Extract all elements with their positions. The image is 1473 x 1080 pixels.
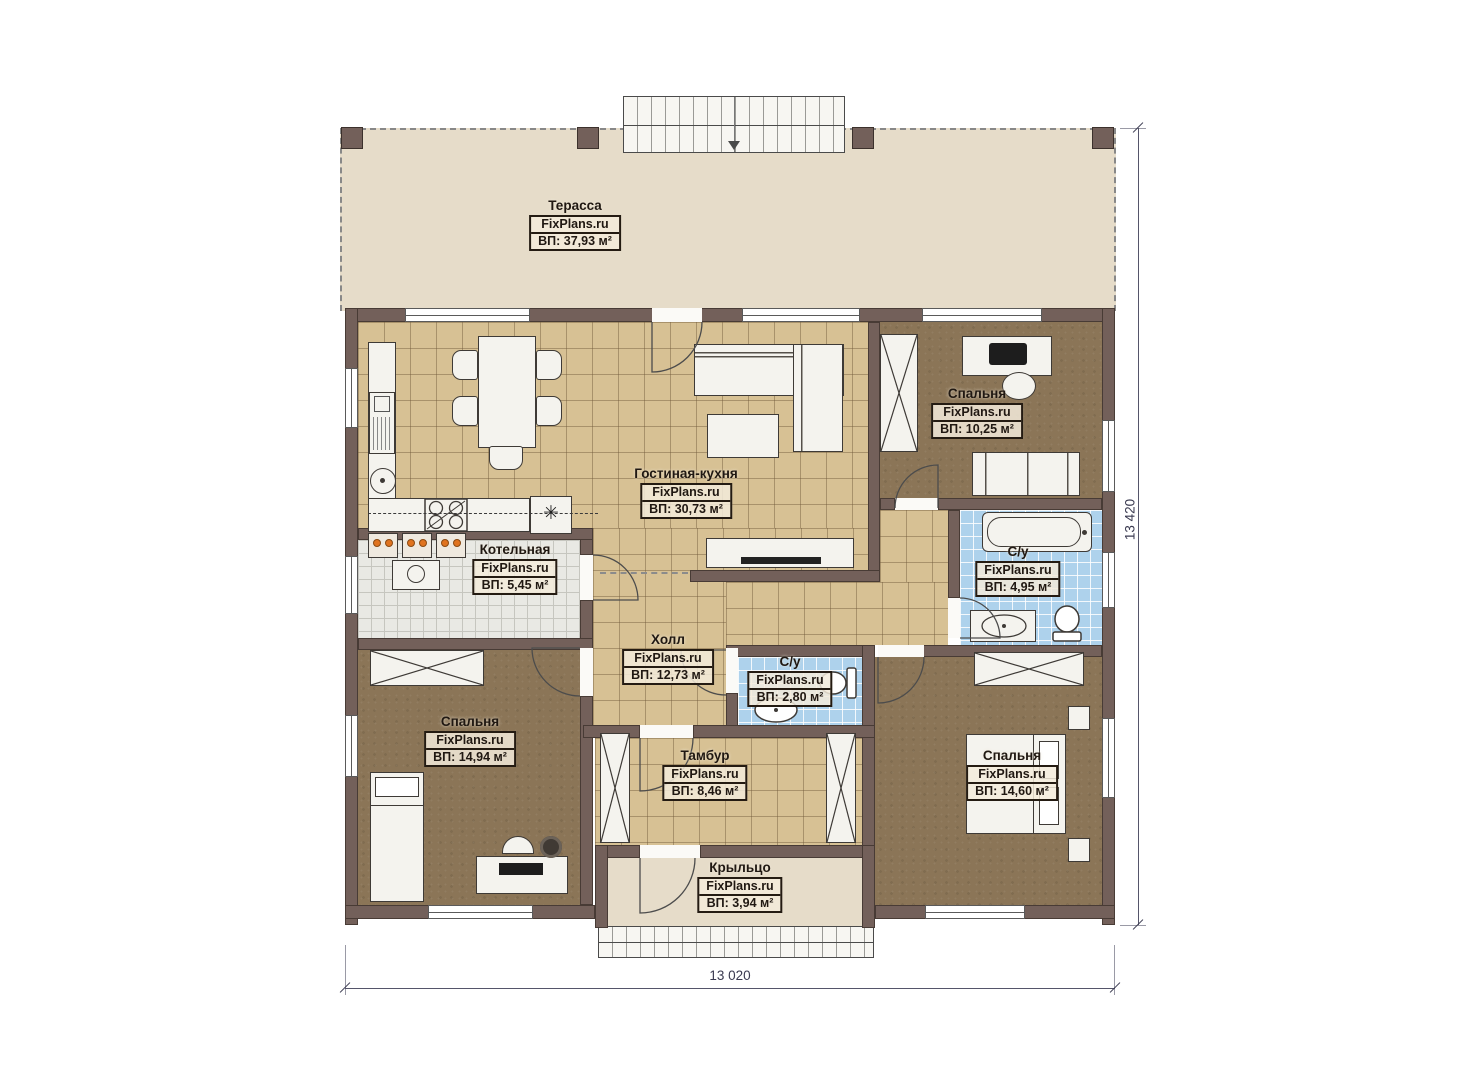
dim-width-label: 13 020	[345, 968, 1115, 983]
room-label-bedroom-br: Спальня FixPlans.ru ВП: 14,60 м²	[966, 748, 1058, 801]
room-label-box: FixPlans.ru ВП: 10,25 м²	[931, 403, 1023, 439]
room-label-bedroom-bl: Спальня FixPlans.ru ВП: 14,94 м²	[424, 714, 516, 767]
brand-text: FixPlans.ru	[749, 673, 830, 690]
room-label-terrace: Терасса FixPlans.ru ВП: 37,93 м²	[529, 198, 621, 251]
room-area: ВП: 10,25 м²	[933, 422, 1021, 437]
room-label-living-kitchen: Гостиная-кухня FixPlans.ru ВП: 30,73 м²	[634, 466, 737, 519]
dim-height-label: 13 420	[1123, 490, 1138, 550]
room-name: Тамбур	[662, 748, 747, 763]
room-label-box: FixPlans.ru ВП: 3,94 м²	[697, 877, 782, 913]
room-label-wc: С/у FixPlans.ru ВП: 2,80 м²	[747, 654, 832, 707]
brand-text: FixPlans.ru	[664, 767, 745, 784]
room-label-box: FixPlans.ru ВП: 30,73 м²	[640, 483, 732, 519]
room-label-vestibule: Тамбур FixPlans.ru ВП: 8,46 м²	[662, 748, 747, 801]
room-label-box: FixPlans.ru ВП: 12,73 м²	[622, 649, 714, 685]
room-label-boiler: Котельная FixPlans.ru ВП: 5,45 м²	[472, 542, 557, 595]
room-area: ВП: 14,60 м²	[968, 784, 1056, 799]
door-arc-porch	[640, 858, 695, 913]
room-label-box: FixPlans.ru ВП: 5,45 м²	[472, 559, 557, 595]
brand-text: FixPlans.ru	[426, 733, 514, 750]
brand-text: FixPlans.ru	[699, 879, 780, 896]
dim-line-right	[1138, 128, 1139, 925]
door-arc-boiler	[593, 555, 638, 600]
room-area: ВП: 30,73 м²	[642, 502, 730, 517]
door-arc-bedroom-br	[878, 657, 924, 703]
dim-line-bottom	[345, 988, 1115, 989]
brand-text: FixPlans.ru	[642, 485, 730, 502]
dim-extension-right-bottom	[1120, 925, 1146, 926]
room-area: ВП: 8,46 м²	[664, 784, 745, 799]
brand-text: FixPlans.ru	[474, 561, 555, 578]
room-area: ВП: 5,45 м²	[474, 578, 555, 593]
room-label-porch: Крыльцо FixPlans.ru ВП: 3,94 м²	[697, 860, 782, 913]
room-name: С/у	[975, 544, 1060, 559]
room-label-box: FixPlans.ru ВП: 14,60 м²	[966, 765, 1058, 801]
brand-text: FixPlans.ru	[968, 767, 1056, 784]
room-label-bedroom-tr: Спальня FixPlans.ru ВП: 10,25 м²	[931, 386, 1023, 439]
brand-text: FixPlans.ru	[531, 217, 619, 234]
room-name: Крыльцо	[697, 860, 782, 875]
door-arc-terrace	[652, 322, 702, 372]
room-area: ВП: 3,94 м²	[699, 896, 780, 911]
room-label-box: FixPlans.ru ВП: 2,80 м²	[747, 671, 832, 707]
room-name: Спальня	[931, 386, 1023, 401]
door-arc-bathroom	[960, 598, 1000, 638]
room-name: С/у	[747, 654, 832, 669]
room-label-bathroom: С/у FixPlans.ru ВП: 4,95 м²	[975, 544, 1060, 597]
room-name: Холл	[622, 632, 714, 647]
room-area: ВП: 37,93 м²	[531, 234, 619, 249]
room-label-box: FixPlans.ru ВП: 14,94 м²	[424, 731, 516, 767]
room-label-box: FixPlans.ru ВП: 37,93 м²	[529, 215, 621, 251]
door-arcs-layer	[0, 0, 1473, 1080]
door-arc-bedroom-bl	[532, 648, 580, 696]
room-name: Спальня	[424, 714, 516, 729]
room-label-hall: Холл FixPlans.ru ВП: 12,73 м²	[622, 632, 714, 685]
room-label-box: FixPlans.ru ВП: 4,95 м²	[975, 561, 1060, 597]
room-area: ВП: 4,95 м²	[977, 580, 1058, 595]
brand-text: FixPlans.ru	[624, 651, 712, 668]
brand-text: FixPlans.ru	[977, 563, 1058, 580]
door-arc-bedroom-tr	[895, 465, 938, 508]
room-area: ВП: 2,80 м²	[749, 690, 830, 705]
dim-extension-right-top	[1120, 128, 1146, 129]
room-area: ВП: 12,73 м²	[624, 668, 712, 683]
room-label-box: FixPlans.ru ВП: 8,46 м²	[662, 765, 747, 801]
room-name: Спальня	[966, 748, 1058, 763]
floor-plan-canvas: ✳	[0, 0, 1473, 1080]
room-name: Терасса	[529, 198, 621, 213]
room-area: ВП: 14,94 м²	[426, 750, 514, 765]
room-name: Гостиная-кухня	[634, 466, 737, 481]
brand-text: FixPlans.ru	[933, 405, 1021, 422]
room-name: Котельная	[472, 542, 557, 557]
